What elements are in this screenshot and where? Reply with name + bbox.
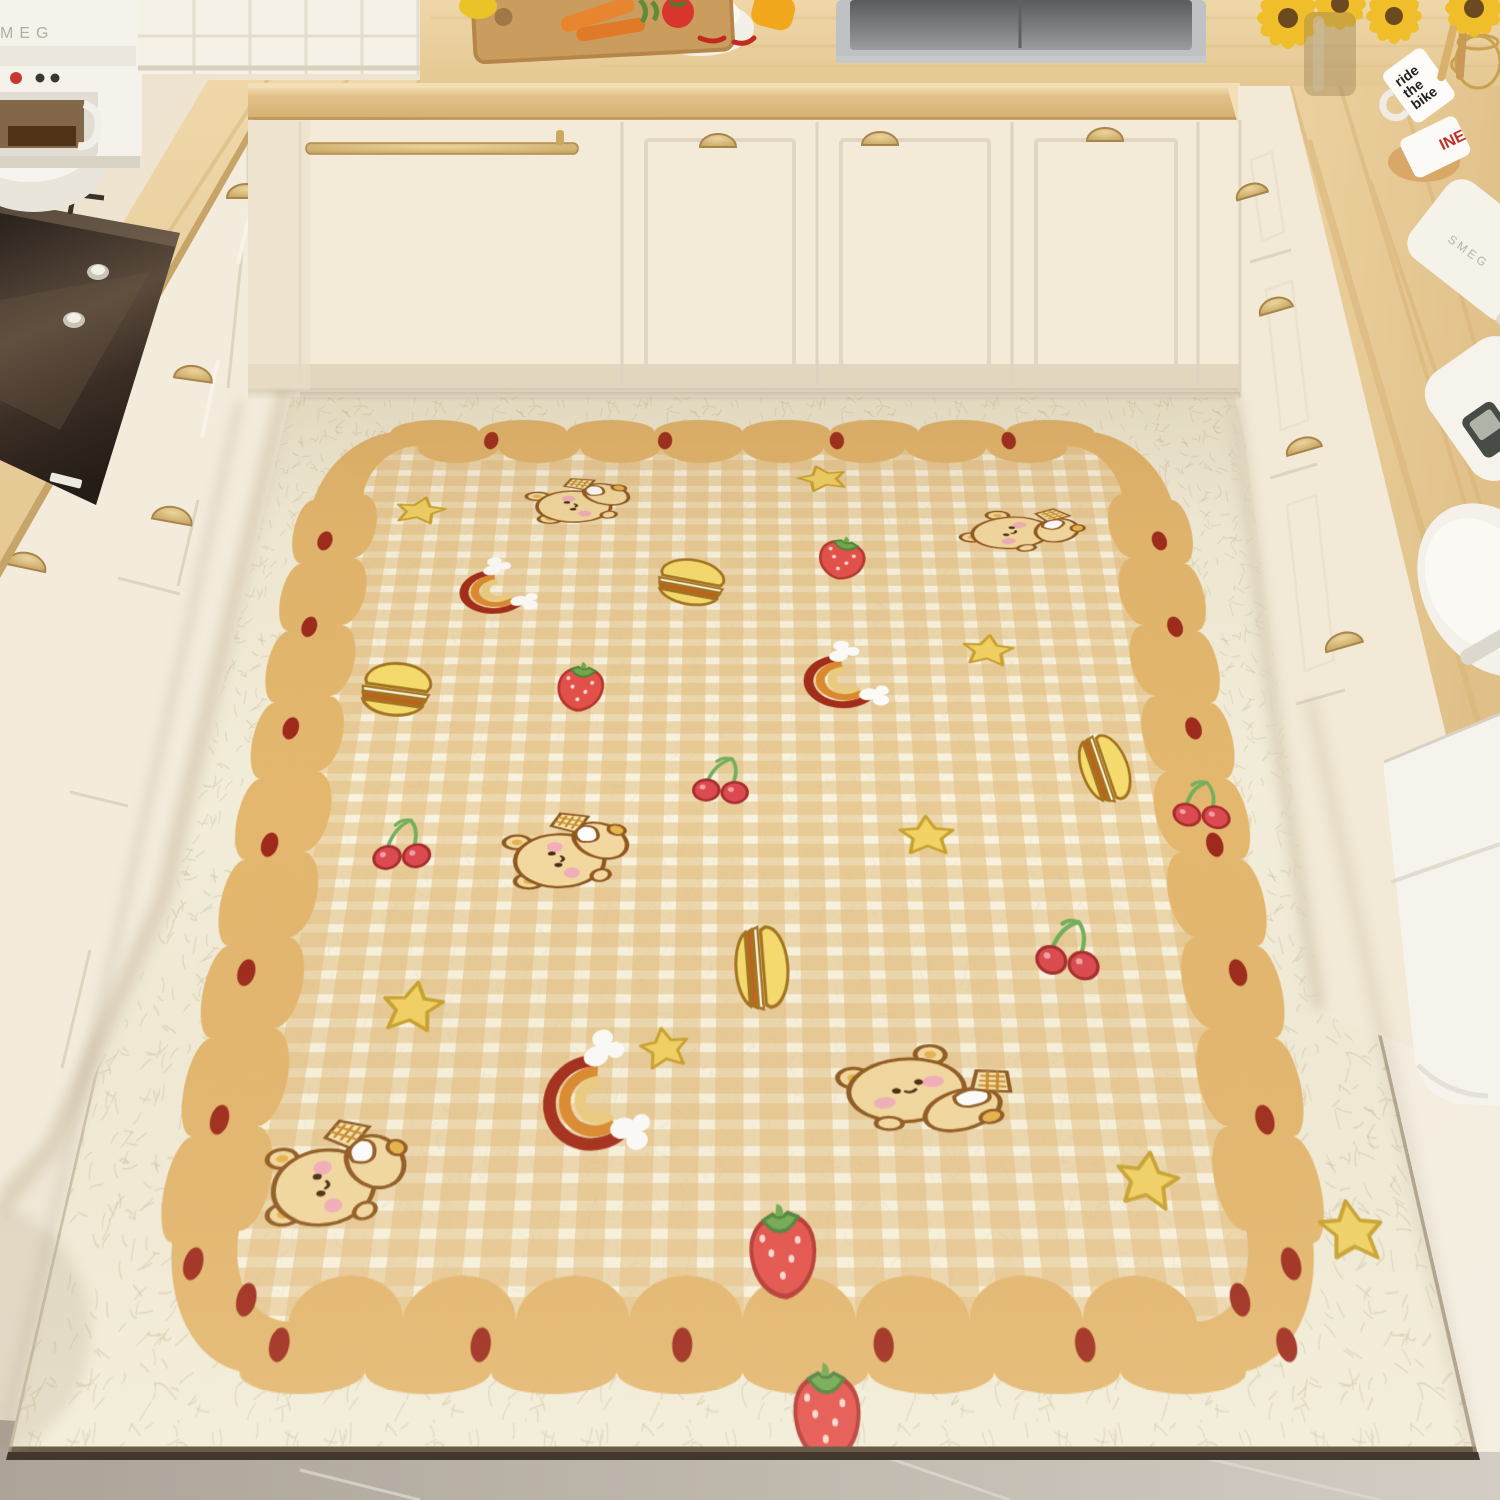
svg-text:MEG: MEG <box>0 25 54 42</box>
